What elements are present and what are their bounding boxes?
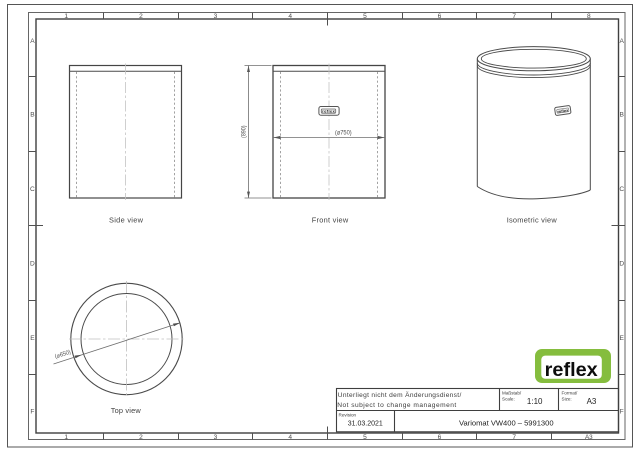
svg-text:A: A <box>30 38 35 45</box>
svg-text:Front view: Front view <box>312 215 349 224</box>
svg-text:3: 3 <box>214 434 218 441</box>
svg-text:Scale:: Scale: <box>502 397 515 402</box>
svg-text:C: C <box>619 186 624 193</box>
svg-text:A3: A3 <box>587 397 597 406</box>
svg-text:6: 6 <box>438 434 442 441</box>
svg-text:F: F <box>620 409 624 416</box>
svg-text:1: 1 <box>64 434 68 441</box>
svg-text:Unterliegt nicht dem Änderu: Unterliegt nicht dem Änderungsdienst/ <box>338 391 462 399</box>
svg-text:B: B <box>30 112 35 119</box>
svg-text:4: 4 <box>288 434 292 441</box>
svg-text:B: B <box>619 112 624 119</box>
svg-text:Isometric view: Isometric view <box>507 215 558 224</box>
svg-text:E: E <box>30 335 35 342</box>
svg-text:D: D <box>619 260 624 267</box>
svg-text:Variomat VW400 – 5991300: Variomat VW400 – 5991300 <box>459 419 554 428</box>
svg-text:1:10: 1:10 <box>527 397 543 406</box>
svg-text:A: A <box>619 38 624 45</box>
svg-text:Revision: Revision <box>339 413 357 418</box>
svg-text:Side view: Side view <box>109 215 144 224</box>
svg-text:(890): (890) <box>241 125 248 138</box>
svg-text:1: 1 <box>64 13 68 20</box>
svg-text:Maßstab/: Maßstab/ <box>502 391 522 396</box>
svg-text:6: 6 <box>438 13 442 20</box>
svg-text:reflex: reflex <box>322 109 335 113</box>
svg-text:5: 5 <box>363 434 367 441</box>
svg-text:Not subject to change mana: Not subject to change management <box>337 402 456 409</box>
svg-text:Top view: Top view <box>111 406 142 415</box>
svg-text:(⌀750): (⌀750) <box>335 130 352 137</box>
svg-text:A3: A3 <box>585 434 593 441</box>
svg-text:F: F <box>30 409 34 416</box>
svg-text:Size:: Size: <box>562 397 572 402</box>
svg-text:D: D <box>30 260 35 267</box>
svg-text:5: 5 <box>363 13 367 20</box>
svg-text:8: 8 <box>587 13 591 20</box>
svg-text:31.03.2021: 31.03.2021 <box>348 418 383 427</box>
svg-text:Format/: Format/ <box>562 391 579 396</box>
svg-text:7: 7 <box>512 13 516 20</box>
svg-text:E: E <box>619 335 624 342</box>
svg-text:7: 7 <box>512 434 516 441</box>
svg-text:4: 4 <box>288 13 292 20</box>
svg-text:C: C <box>30 186 35 193</box>
svg-text:2: 2 <box>139 434 143 441</box>
svg-text:2: 2 <box>139 13 143 20</box>
svg-text:reflex: reflex <box>545 359 598 381</box>
svg-text:3: 3 <box>214 13 218 20</box>
